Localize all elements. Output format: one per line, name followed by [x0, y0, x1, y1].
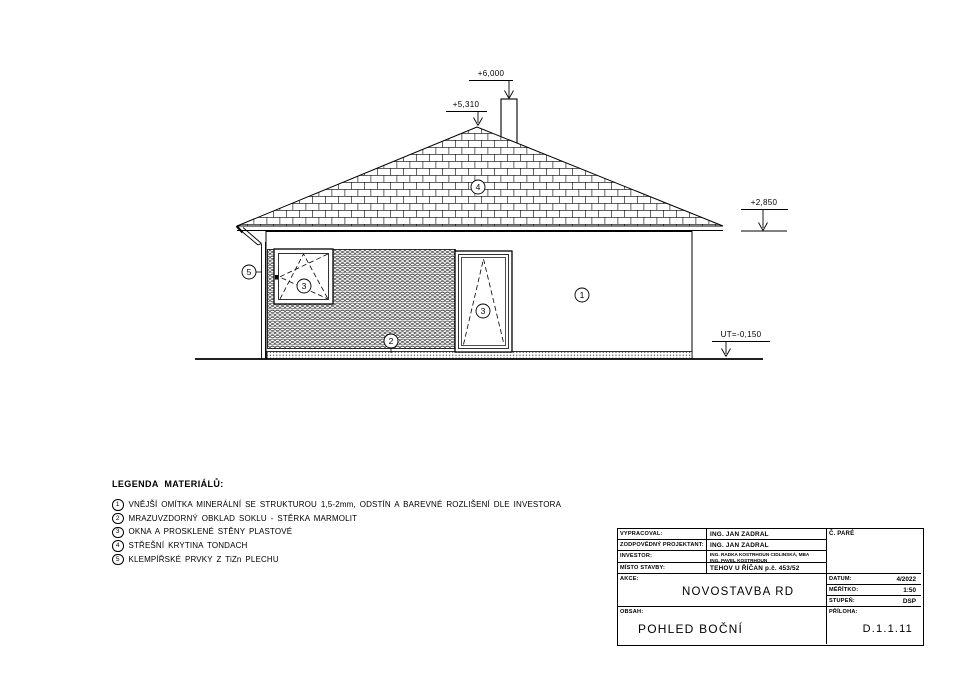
- obsah-label: OBSAH:: [618, 607, 826, 615]
- glazed-door: [455, 251, 512, 352]
- legend-item-text: VNĚJŠÍ OMÍTKA MINERÁLNÍ SE STRUKTUROU 1,…: [129, 498, 562, 512]
- titleblock-label-misto: MÍSTO STAVBY:: [618, 563, 707, 574]
- legend-item-number: 1: [112, 499, 124, 511]
- gutter-downspout: [237, 226, 266, 359]
- legend-item: 3 OKNA A PROSKLENÉ STĚNY PLASTOVÉ: [112, 525, 612, 539]
- title-block: VYPRACOVAL: ING. JAN ZADRAL ZODPOVĚDNÝ P…: [617, 528, 924, 646]
- materials-legend: LEGENDA MATERIÁLŮ: 1 VNĚJŠÍ OMÍTKA MINER…: [112, 479, 612, 567]
- level-mark-terrain: UT=-0,150: [712, 330, 770, 357]
- titleblock-akce: AKCE: NOVOSTAVBA RD: [618, 574, 827, 607]
- level-mark-eave: +2,850: [741, 198, 788, 231]
- stupen-label: STUPEŇ:: [827, 596, 855, 604]
- svg-text:2: 2: [389, 336, 394, 346]
- level-mark-ridge: +5,310: [446, 100, 487, 126]
- legend-item: 2 MRAZUVZDORNÝ OBKLAD SOKLU - STĚRKA MAR…: [112, 512, 612, 526]
- marker-roof: 4: [471, 180, 485, 194]
- drawing-sheet: 3 3 1 2 4: [0, 0, 960, 678]
- legend-item: 1 VNĚJŠÍ OMÍTKA MINERÁLNÍ SE STRUKTUROU …: [112, 498, 612, 512]
- svg-text:5: 5: [247, 267, 252, 277]
- datum-value: 4/2022: [896, 576, 916, 583]
- project-title: NOVOSTAVBA RD: [682, 586, 794, 598]
- svg-text:+6,000: +6,000: [478, 69, 505, 78]
- legend-item-number: 4: [112, 540, 124, 552]
- titleblock-pare: Č. PARÉ: [827, 529, 921, 574]
- titleblock-value-zodpovedny: ING. JAN ZADRAL: [707, 540, 827, 551]
- legend-item-text: OKNA A PROSKLENÉ STĚNY PLASTOVÉ: [129, 525, 293, 539]
- meritko-value: 1:50: [903, 587, 916, 594]
- sheet-title: POHLED BOČNÍ: [638, 622, 743, 636]
- titleblock-value-investor: ING. RADKA KOSTRHOUN CIDLINSKÁ, MBA ING.…: [707, 551, 827, 563]
- legend-item-text: MRAZUVZDORNÝ OBKLAD SOKLU - STĚRKA MARMO…: [129, 512, 358, 526]
- legend-item: 5 KLEMPÍŘSKÉ PRVKY Z TiZn PLECHU: [112, 553, 612, 567]
- titleblock-meritko: MĚŘÍTKO: 1:50: [827, 585, 921, 596]
- titleblock-datum: DATUM: 4/2022: [827, 574, 921, 585]
- marker-door-window: 3: [476, 304, 490, 318]
- titleblock-priloha: PŘÍLOHA: D.1.1.11: [827, 607, 921, 644]
- meritko-label: MĚŘÍTKO:: [827, 585, 858, 593]
- drawing-number: D.1.1.11: [863, 623, 913, 635]
- legend-title: LEGENDA MATERIÁLŮ:: [112, 479, 612, 489]
- window: [274, 249, 333, 304]
- titleblock-label-vypracoval: VYPRACOVAL:: [618, 529, 707, 540]
- marker-window: 3: [297, 279, 311, 293]
- titleblock-label-investor: INVESTOR:: [618, 551, 707, 563]
- legend-item-number: 5: [112, 554, 124, 566]
- titleblock-stupen: STUPEŇ: DSP: [827, 596, 921, 607]
- svg-text:3: 3: [302, 281, 307, 291]
- level-mark-chimney-top: +6,000: [469, 69, 514, 99]
- titleblock-obsah: OBSAH: POHLED BOČNÍ: [618, 607, 827, 644]
- legend-item-number: 3: [112, 527, 124, 539]
- svg-text:+2,850: +2,850: [751, 198, 778, 207]
- legend-item-text: KLEMPÍŘSKÉ PRVKY Z TiZn PLECHU: [129, 553, 279, 567]
- priloha-label: PŘÍLOHA:: [827, 607, 921, 615]
- datum-label: DATUM:: [827, 574, 852, 582]
- titleblock-value-misto: TEHOV U ŘÍČAN p.č. 453/52: [707, 563, 827, 574]
- akce-label: AKCE:: [618, 574, 826, 582]
- svg-text:4: 4: [476, 182, 481, 192]
- legend-item: 4 STŘEŠNÍ KRYTINA TONDACH: [112, 539, 612, 553]
- svg-text:UT=-0,150: UT=-0,150: [721, 330, 762, 339]
- stupen-value: DSP: [903, 598, 916, 605]
- svg-text:+5,310: +5,310: [453, 100, 480, 109]
- roof: [237, 127, 723, 231]
- titleblock-value-vypracoval: ING. JAN ZADRAL: [707, 529, 827, 540]
- legend-item-number: 2: [112, 513, 124, 525]
- svg-text:3: 3: [481, 306, 486, 316]
- titleblock-label-zodpovedny: ZODPOVĚDNÝ PROJEKTANT:: [618, 540, 707, 551]
- svg-text:1: 1: [580, 290, 585, 300]
- investor-line-1: ING. RADKA KOSTRHOUN CIDLINSKÁ, MBA: [707, 551, 826, 558]
- marker-plaster: 1: [575, 288, 589, 302]
- marker-flashing: 5: [242, 265, 262, 279]
- legend-item-text: STŘEŠNÍ KRYTINA TONDACH: [129, 539, 248, 553]
